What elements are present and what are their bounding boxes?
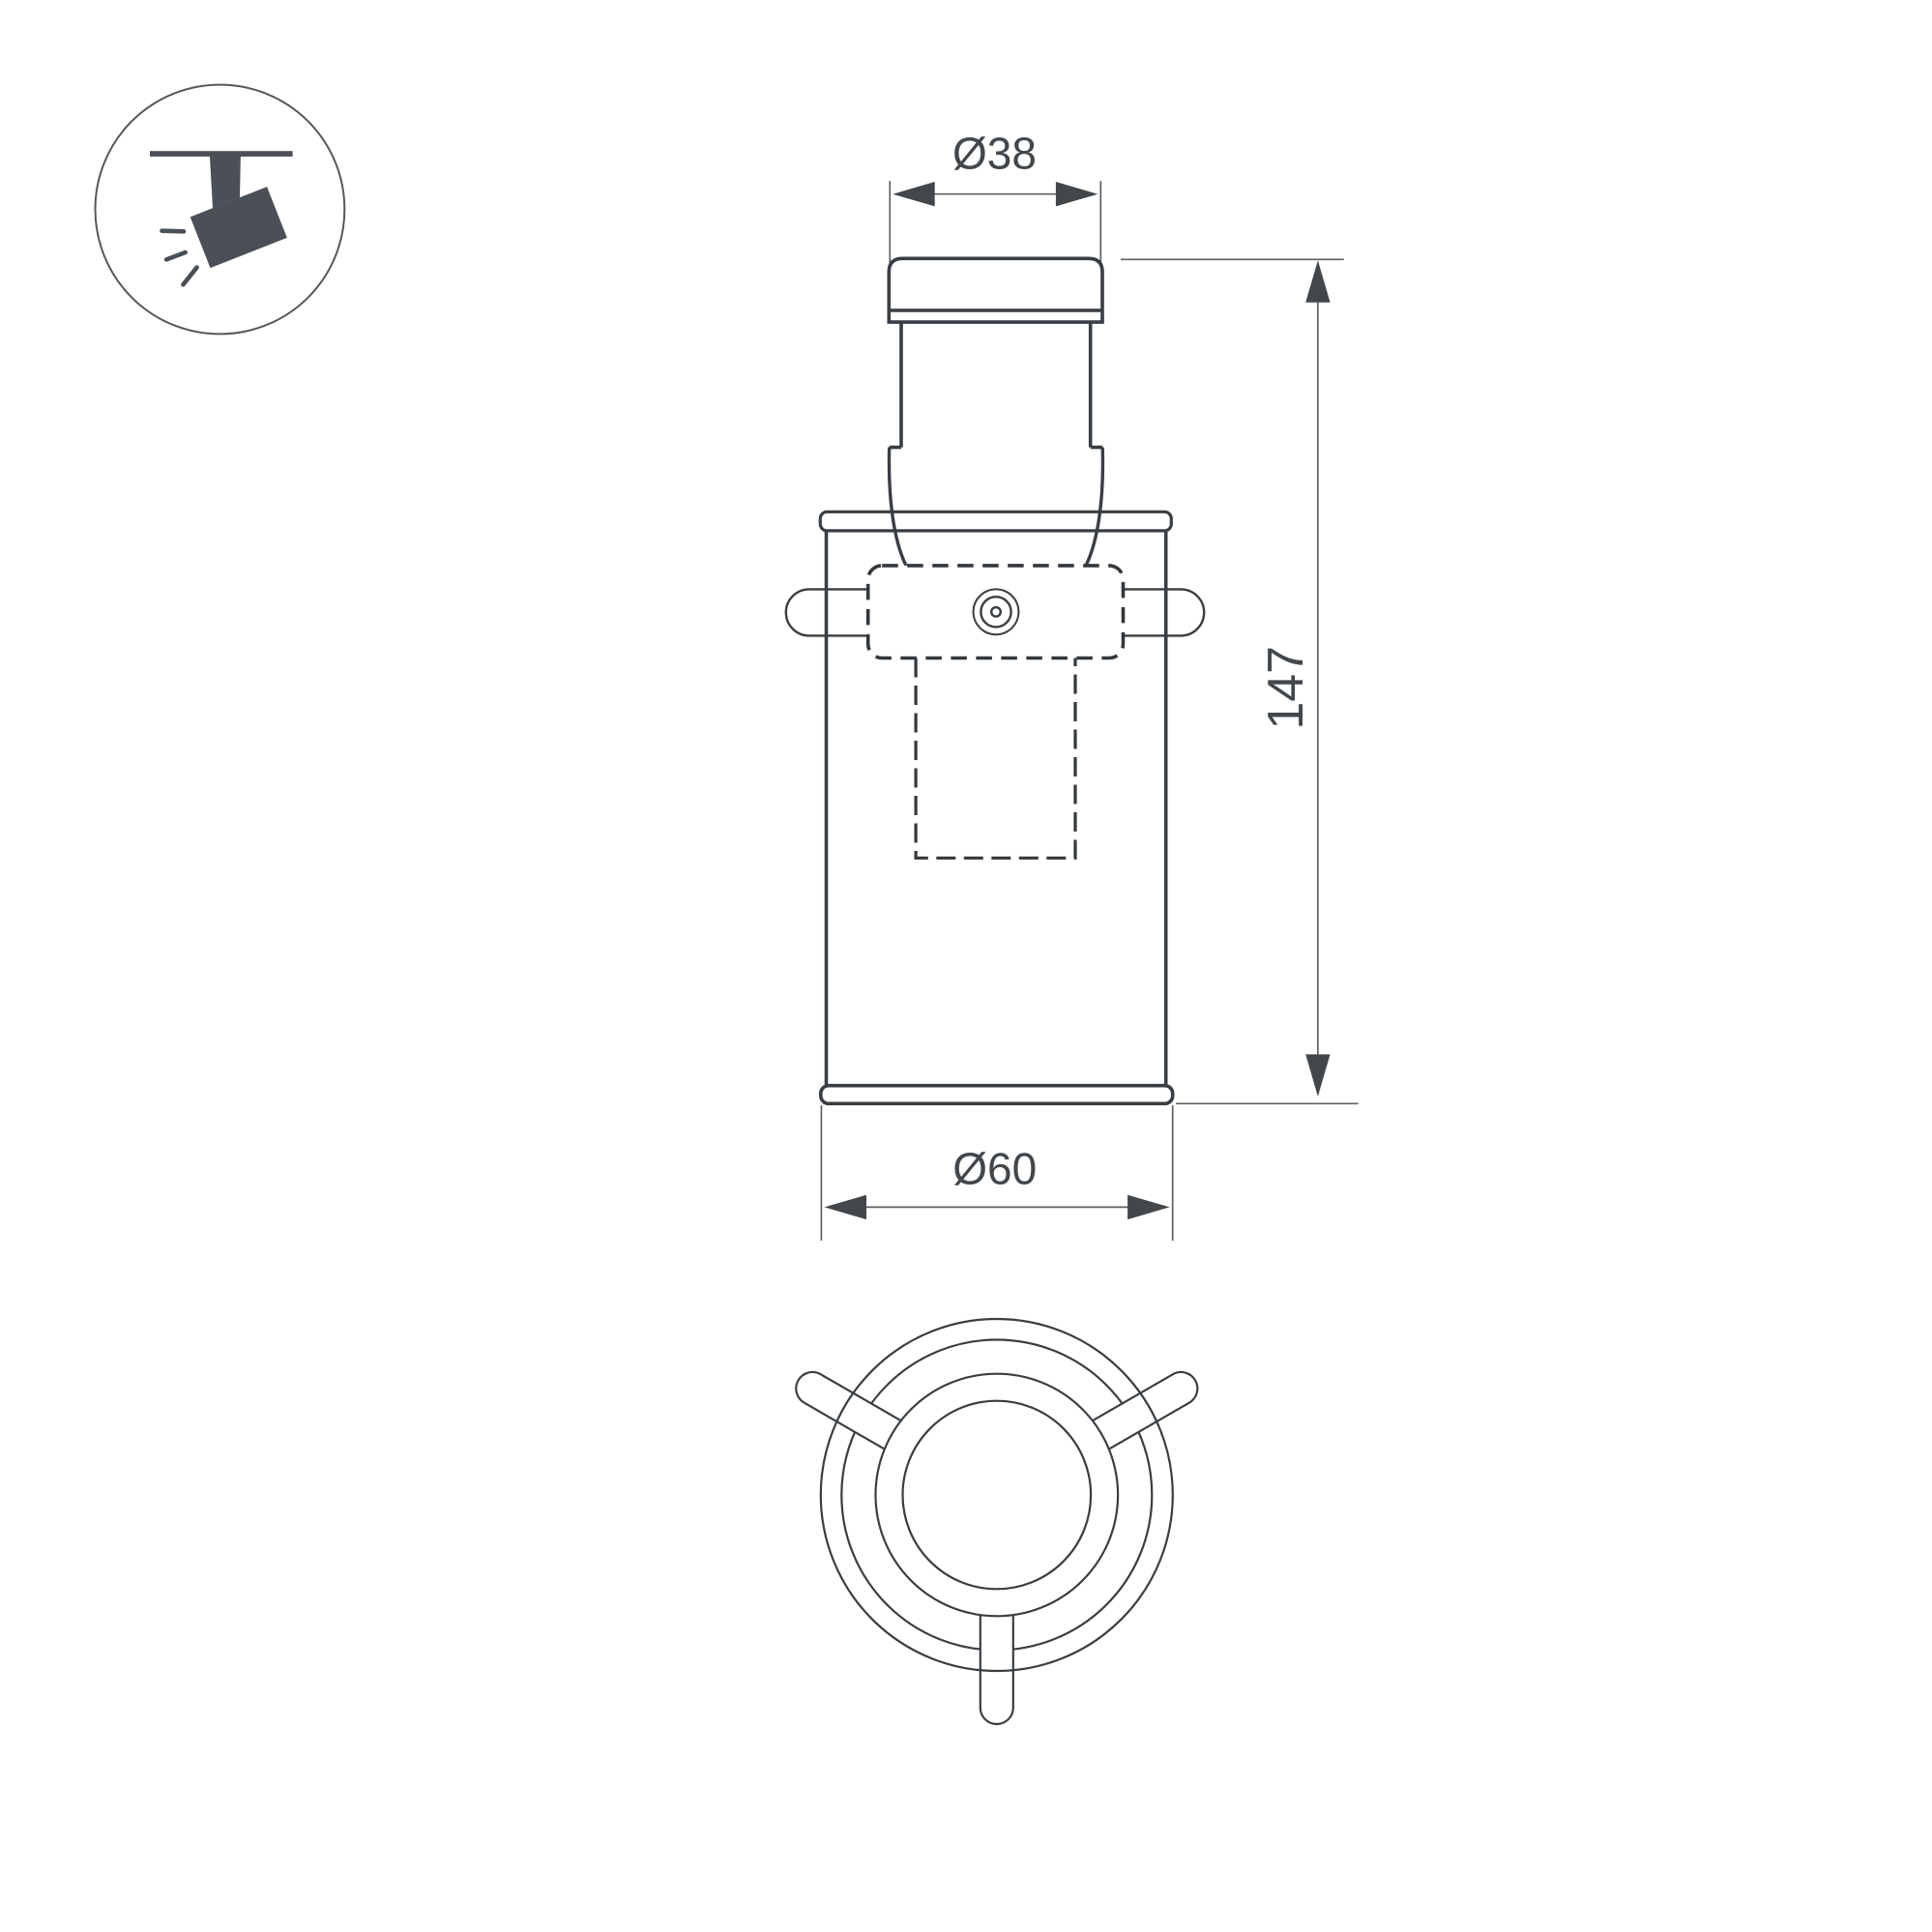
svg-text:Ø60: Ø60 <box>952 1144 1037 1194</box>
svg-text:147: 147 <box>1258 646 1314 730</box>
svg-text:Ø38: Ø38 <box>952 129 1037 179</box>
